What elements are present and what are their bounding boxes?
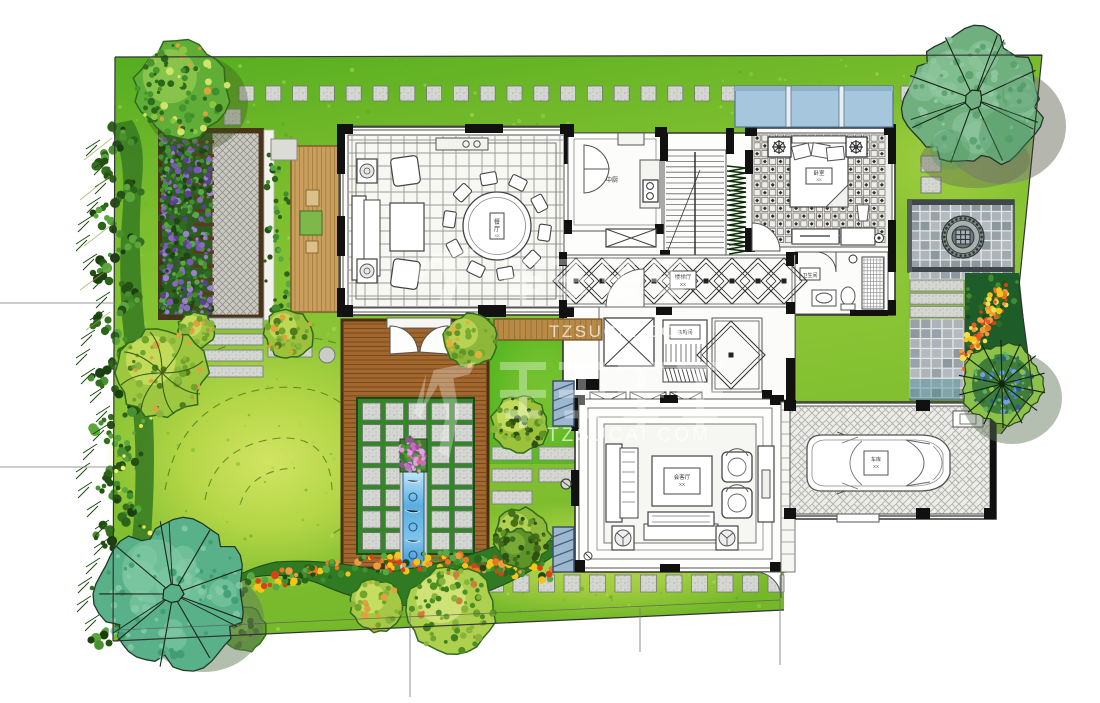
svg-text:XX: XX [680, 282, 686, 287]
svg-text:厅: 厅 [494, 226, 500, 233]
svg-text:XX: XX [873, 464, 879, 469]
svg-text:餐: 餐 [494, 218, 500, 226]
svg-text:会客厅: 会客厅 [674, 473, 691, 481]
svg-text:XX: XX [816, 177, 822, 182]
svg-text:XX: XX [494, 233, 500, 238]
svg-text:卫生间: 卫生间 [802, 272, 817, 279]
svg-text:XX: XX [679, 482, 685, 487]
svg-text:TZSUCAI.COM: TZSUCAI.COM [549, 322, 694, 341]
svg-text:车库: 车库 [871, 456, 881, 463]
svg-text:卧室: 卧室 [813, 169, 825, 177]
svg-text:TZSUCAI.COM: TZSUCAI.COM [547, 425, 711, 446]
svg-text:中厨: 中厨 [606, 176, 618, 184]
